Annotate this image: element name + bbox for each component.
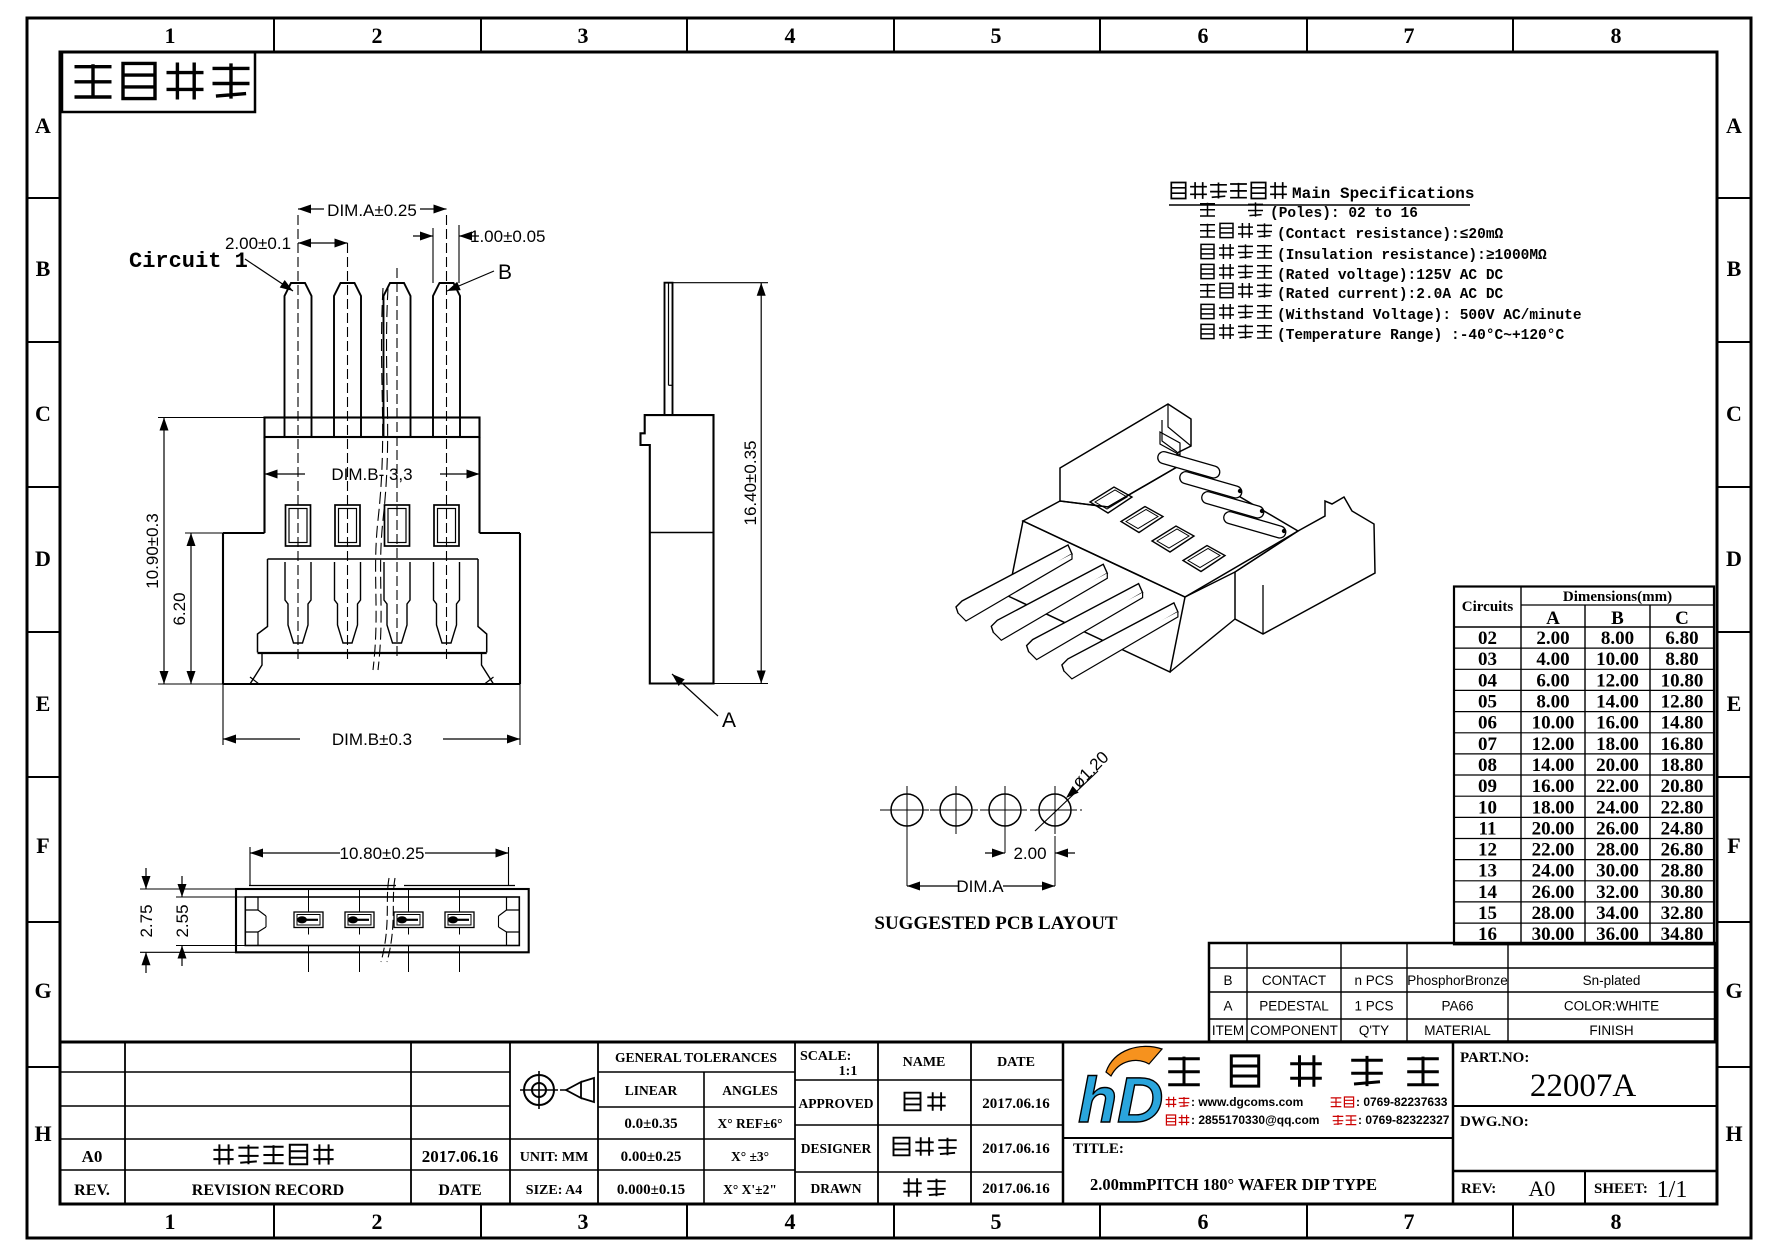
- svg-text:G: G: [34, 978, 51, 1003]
- svg-text:C: C: [1726, 401, 1742, 426]
- svg-text:APPROVED: APPROVED: [799, 1096, 874, 1111]
- svg-text:DIM.A: DIM.A: [956, 877, 1004, 896]
- svg-text:16.80: 16.80: [1661, 734, 1704, 755]
- svg-text:2.55: 2.55: [173, 904, 192, 937]
- svg-text:14.00: 14.00: [1532, 755, 1575, 776]
- svg-text:1.00±0.05: 1.00±0.05: [470, 227, 546, 246]
- svg-text:REVISION RECORD: REVISION RECORD: [192, 1182, 344, 1199]
- svg-text:7: 7: [1404, 1209, 1415, 1234]
- svg-text:: 2855170330@qq.com: : 2855170330@qq.com: [1191, 1113, 1319, 1127]
- svg-text:A: A: [722, 709, 736, 732]
- svg-text:2.00: 2.00: [1013, 844, 1046, 863]
- svg-text:16.00: 16.00: [1532, 776, 1575, 797]
- svg-text:4: 4: [785, 23, 796, 48]
- svg-text:X° REF±6°: X° REF±6°: [717, 1116, 782, 1131]
- svg-text:14.80: 14.80: [1661, 713, 1704, 734]
- svg-text:DATE: DATE: [997, 1055, 1035, 1070]
- svg-text:UNIT: MM: UNIT: MM: [520, 1150, 589, 1165]
- svg-text:E: E: [36, 691, 51, 716]
- svg-text:D: D: [35, 546, 51, 571]
- svg-text:28.80: 28.80: [1661, 861, 1704, 882]
- svg-text:REV:: REV:: [1461, 1181, 1496, 1197]
- svg-text:GENERAL TOLERANCES: GENERAL TOLERANCES: [615, 1050, 777, 1065]
- svg-text:10.90±0.3: 10.90±0.3: [143, 513, 162, 589]
- svg-text:SHEET:: SHEET:: [1594, 1181, 1648, 1197]
- svg-text:02: 02: [1478, 628, 1497, 649]
- svg-text:DRAWN: DRAWN: [810, 1181, 861, 1196]
- svg-text:TITLE:: TITLE:: [1073, 1141, 1124, 1157]
- svg-text:6: 6: [1198, 1209, 1209, 1234]
- svg-text:26.00: 26.00: [1596, 818, 1639, 839]
- svg-text:F: F: [1727, 833, 1740, 858]
- svg-text:15: 15: [1478, 903, 1497, 924]
- svg-text:12.80: 12.80: [1661, 692, 1704, 713]
- svg-text:X° ±3°: X° ±3°: [731, 1149, 769, 1164]
- svg-text:1:1: 1:1: [839, 1064, 858, 1079]
- svg-text:04: 04: [1478, 670, 1498, 691]
- svg-text:1: 1: [165, 23, 176, 48]
- svg-text:(Temperature Range) :-40°C~+12: (Temperature Range) :-40°C~+120°C: [1277, 328, 1564, 344]
- svg-text:08: 08: [1478, 755, 1497, 776]
- svg-text:3: 3: [578, 1209, 589, 1234]
- svg-text:Main Specifications: Main Specifications: [1292, 185, 1474, 203]
- svg-text:26.00: 26.00: [1532, 882, 1575, 903]
- svg-text:A0: A0: [82, 1147, 103, 1166]
- svg-text:20.80: 20.80: [1661, 776, 1704, 797]
- svg-text:22007A: 22007A: [1530, 1068, 1637, 1104]
- svg-text:30.80: 30.80: [1661, 882, 1704, 903]
- svg-text:13: 13: [1478, 861, 1497, 882]
- svg-text:8: 8: [1611, 23, 1622, 48]
- svg-text:22.00: 22.00: [1532, 840, 1575, 861]
- svg-text:E: E: [1727, 691, 1742, 716]
- svg-text:B: B: [1223, 973, 1232, 988]
- svg-text:Q'TY: Q'TY: [1359, 1023, 1389, 1038]
- svg-text:C: C: [1675, 608, 1689, 629]
- svg-text:B: B: [1611, 608, 1624, 629]
- svg-text:REV.: REV.: [74, 1182, 110, 1199]
- svg-text:12: 12: [1478, 840, 1497, 861]
- svg-text:34.00: 34.00: [1596, 903, 1639, 924]
- svg-text:12.00: 12.00: [1596, 670, 1639, 691]
- svg-text:PhosphorBronze: PhosphorBronze: [1407, 973, 1508, 988]
- svg-text:(Rated voltage):125V AC DC: (Rated voltage):125V AC DC: [1277, 268, 1504, 284]
- svg-text:G: G: [1725, 978, 1742, 1003]
- svg-text:: www.dgcoms.com: : www.dgcoms.com: [1191, 1095, 1303, 1109]
- svg-text:: 0769-82237633: : 0769-82237633: [1356, 1095, 1448, 1109]
- svg-text:H: H: [1725, 1121, 1742, 1146]
- svg-text:30.00: 30.00: [1596, 861, 1639, 882]
- svg-text:32.80: 32.80: [1661, 903, 1704, 924]
- svg-text:ANGLES: ANGLES: [722, 1083, 778, 1098]
- svg-text:0.0±0.35: 0.0±0.35: [624, 1116, 677, 1132]
- svg-text:2017.06.16: 2017.06.16: [982, 1141, 1050, 1157]
- svg-text:22.00: 22.00: [1596, 776, 1639, 797]
- svg-text:28.00: 28.00: [1596, 840, 1639, 861]
- svg-text:18.00: 18.00: [1596, 734, 1639, 755]
- svg-text:2.75: 2.75: [137, 904, 156, 937]
- svg-text:1: 1: [165, 1209, 176, 1234]
- svg-text:D: D: [1726, 546, 1742, 571]
- svg-text:16.40±0.35: 16.40±0.35: [741, 441, 760, 526]
- svg-text:PA66: PA66: [1441, 999, 1473, 1014]
- svg-text:18.00: 18.00: [1532, 797, 1575, 818]
- svg-text:0.000±0.15: 0.000±0.15: [617, 1182, 685, 1198]
- svg-text:hD: hD: [1078, 1064, 1163, 1136]
- svg-text:10.80: 10.80: [1661, 670, 1704, 691]
- svg-text:F: F: [36, 833, 49, 858]
- svg-text:28.00: 28.00: [1532, 903, 1575, 924]
- svg-text:10.00: 10.00: [1596, 649, 1639, 670]
- svg-text:09: 09: [1478, 776, 1497, 797]
- svg-text:03: 03: [1478, 649, 1497, 670]
- svg-text:11: 11: [1479, 818, 1497, 839]
- svg-text:5: 5: [991, 23, 1002, 48]
- svg-text:6: 6: [1198, 23, 1209, 48]
- svg-text:B: B: [1727, 256, 1742, 281]
- svg-text:(Insulation resistance):≥1000M: (Insulation resistance):≥1000MΩ: [1277, 248, 1547, 264]
- svg-text:14.00: 14.00: [1596, 692, 1639, 713]
- svg-text:2017.06.16: 2017.06.16: [982, 1096, 1050, 1112]
- svg-text:Dimensions(mm): Dimensions(mm): [1563, 589, 1672, 605]
- svg-text:14: 14: [1478, 882, 1498, 903]
- svg-text:DIM.A±0.25: DIM.A±0.25: [327, 201, 417, 220]
- svg-text:2.00: 2.00: [1536, 628, 1569, 649]
- svg-text:16.00: 16.00: [1596, 713, 1639, 734]
- svg-text:8.00: 8.00: [1601, 628, 1634, 649]
- svg-text:PART.NO:: PART.NO:: [1460, 1050, 1529, 1066]
- svg-text:8.80: 8.80: [1665, 649, 1698, 670]
- svg-text:20.00: 20.00: [1596, 755, 1639, 776]
- svg-text:(Contact resistance):≤20mΩ: (Contact resistance):≤20mΩ: [1277, 227, 1504, 243]
- svg-text:24.00: 24.00: [1596, 797, 1639, 818]
- svg-text:(Poles): 02 to 16: (Poles): 02 to 16: [1270, 206, 1418, 222]
- svg-text:NAME: NAME: [903, 1055, 946, 1070]
- svg-text:10.00: 10.00: [1532, 713, 1575, 734]
- svg-text:Circuit 1: Circuit 1: [129, 249, 248, 274]
- svg-text:22.80: 22.80: [1661, 797, 1704, 818]
- svg-text:MATERIAL: MATERIAL: [1424, 1023, 1491, 1038]
- svg-text:7: 7: [1404, 23, 1415, 48]
- svg-text:24.80: 24.80: [1661, 818, 1704, 839]
- svg-text:4.00: 4.00: [1536, 649, 1569, 670]
- svg-text:DESIGNER: DESIGNER: [801, 1141, 872, 1156]
- svg-text:6.20: 6.20: [170, 592, 189, 625]
- svg-text:n PCS: n PCS: [1354, 973, 1393, 988]
- svg-text:2.00mmPITCH 180° WAFER DIP TYP: 2.00mmPITCH 180° WAFER DIP TYPE: [1090, 1175, 1377, 1194]
- svg-text:DIM.B- 3,3: DIM.B- 3,3: [331, 465, 412, 484]
- svg-text:DIM.B±0.3: DIM.B±0.3: [332, 730, 412, 749]
- svg-text:10.80±0.25: 10.80±0.25: [340, 844, 425, 863]
- svg-text:(Rated current):2.0A AC DC: (Rated current):2.0A AC DC: [1277, 287, 1504, 303]
- svg-text:B: B: [36, 256, 51, 281]
- svg-text:12.00: 12.00: [1532, 734, 1575, 755]
- svg-text:H: H: [34, 1121, 51, 1146]
- svg-text:A: A: [1546, 608, 1560, 629]
- svg-text:2017.06.16: 2017.06.16: [982, 1181, 1050, 1197]
- svg-text:LINEAR: LINEAR: [625, 1083, 678, 1098]
- svg-text:CONTACT: CONTACT: [1262, 973, 1326, 988]
- svg-text:(Withstand Voltage): 500V AC/m: (Withstand Voltage): 500V AC/minute: [1277, 308, 1582, 324]
- svg-text:A0: A0: [1529, 1176, 1556, 1201]
- svg-text:DWG.NO:: DWG.NO:: [1460, 1114, 1529, 1130]
- svg-text:C: C: [35, 401, 51, 426]
- svg-text:Sn-plated: Sn-plated: [1583, 973, 1641, 988]
- svg-text:26.80: 26.80: [1661, 840, 1704, 861]
- svg-text:18.80: 18.80: [1661, 755, 1704, 776]
- svg-text:2017.06.16: 2017.06.16: [422, 1147, 499, 1166]
- svg-text:2: 2: [372, 1209, 383, 1234]
- svg-text:DATE: DATE: [438, 1182, 481, 1199]
- svg-text:05: 05: [1478, 692, 1497, 713]
- svg-text:3: 3: [578, 23, 589, 48]
- svg-text:06: 06: [1478, 713, 1497, 734]
- svg-text:8.00: 8.00: [1536, 692, 1569, 713]
- svg-text:8: 8: [1611, 1209, 1622, 1234]
- svg-text:1/1: 1/1: [1657, 1177, 1688, 1203]
- svg-text:FINISH: FINISH: [1589, 1023, 1633, 1038]
- svg-text:0.00±0.25: 0.00±0.25: [621, 1149, 682, 1165]
- svg-text:COMPONENT: COMPONENT: [1250, 1023, 1338, 1038]
- svg-text:: 0769-82322327: : 0769-82322327: [1358, 1113, 1450, 1127]
- svg-text:24.00: 24.00: [1532, 861, 1575, 882]
- svg-text:4: 4: [785, 1209, 796, 1234]
- svg-text:6.00: 6.00: [1536, 670, 1569, 691]
- svg-text:SIZE: A4: SIZE: A4: [526, 1183, 582, 1198]
- svg-text:A: A: [35, 113, 51, 138]
- svg-text:X° X'±2": X° X'±2": [723, 1182, 777, 1197]
- svg-text:1 PCS: 1 PCS: [1354, 999, 1393, 1014]
- svg-text:SUGGESTED PCB LAYOUT: SUGGESTED PCB LAYOUT: [874, 913, 1118, 934]
- svg-text:6.80: 6.80: [1665, 628, 1698, 649]
- svg-text:20.00: 20.00: [1532, 818, 1575, 839]
- svg-text:COLOR:WHITE: COLOR:WHITE: [1564, 999, 1659, 1014]
- svg-text:2: 2: [372, 23, 383, 48]
- svg-text:SCALE:: SCALE:: [800, 1049, 851, 1064]
- svg-text:Circuits: Circuits: [1462, 599, 1514, 615]
- svg-text:A: A: [1726, 113, 1742, 138]
- svg-text:32.00: 32.00: [1596, 882, 1639, 903]
- svg-text:B: B: [498, 261, 512, 284]
- svg-text:A: A: [1223, 999, 1232, 1014]
- svg-text:07: 07: [1478, 734, 1498, 755]
- svg-text:ITEM: ITEM: [1212, 1023, 1244, 1038]
- svg-text:10: 10: [1478, 797, 1497, 818]
- svg-text:5: 5: [991, 1209, 1002, 1234]
- svg-text:PEDESTAL: PEDESTAL: [1259, 999, 1329, 1014]
